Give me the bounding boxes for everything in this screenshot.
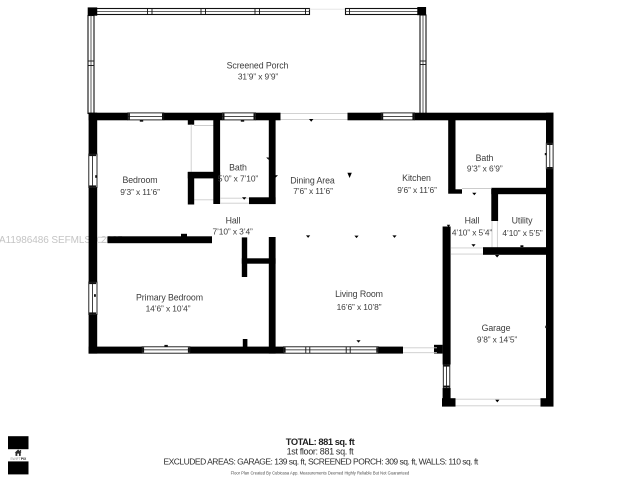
svg-text:14’6” x 10’4”: 14’6” x 10’4” (146, 304, 191, 314)
svg-text:EXCLUDED AREAS: GARAGE: 139 sq: EXCLUDED AREAS: GARAGE: 139 sq. ft, SCRE… (163, 457, 478, 467)
svg-text:Floor Plan Created By Cubicasa: Floor Plan Created By Cubicasa App. Meas… (231, 471, 410, 476)
svg-text:Bath: Bath (229, 162, 247, 172)
svg-text:SWIFTPIX: SWIFTPIX (10, 457, 27, 461)
svg-text:4’10” x 5’5”: 4’10” x 5’5” (502, 228, 543, 238)
svg-text:16’6” x 10’8”: 16’6” x 10’8” (337, 302, 382, 312)
svg-text:9’8” x 14’5”: 9’8” x 14’5” (477, 335, 518, 345)
svg-text:7’10” x 3’4”: 7’10” x 3’4” (212, 227, 253, 237)
svg-text:9’6” x 11’6”: 9’6” x 11’6” (397, 185, 437, 195)
svg-text:Garage: Garage (482, 323, 511, 333)
svg-text:4’10” x 5’4”: 4’10” x 5’4” (452, 228, 493, 238)
svg-text:5’0” x 7’10”: 5’0” x 7’10” (218, 174, 259, 184)
svg-text:1st floor: 881 sq. ft: 1st floor: 881 sq. ft (287, 447, 355, 457)
svg-text:Kitchen: Kitchen (402, 173, 431, 183)
svg-text:Screened Porch: Screened Porch (227, 61, 289, 71)
svg-text:31’9” x 9’9”: 31’9” x 9’9” (238, 71, 279, 81)
svg-text:Primary Bedroom: Primary Bedroom (136, 293, 203, 303)
svg-text:Hall: Hall (465, 216, 480, 226)
svg-text:Bath: Bath (476, 153, 494, 163)
svg-text:7’6” x 11’6”: 7’6” x 11’6” (293, 186, 333, 196)
svg-text:Dining Area: Dining Area (290, 175, 335, 185)
svg-text:Hall: Hall (226, 216, 241, 226)
svg-text:Living Room: Living Room (335, 289, 383, 299)
svg-text:TOTAL: 881 sq. ft: TOTAL: 881 sq. ft (286, 437, 355, 447)
svg-text:Utility: Utility (512, 216, 534, 226)
svg-text:9’3” x 6’9”: 9’3” x 6’9” (467, 163, 503, 173)
svg-text:Bedroom: Bedroom (123, 175, 158, 185)
svg-text:9’3” x 11’6”: 9’3” x 11’6” (120, 187, 160, 197)
